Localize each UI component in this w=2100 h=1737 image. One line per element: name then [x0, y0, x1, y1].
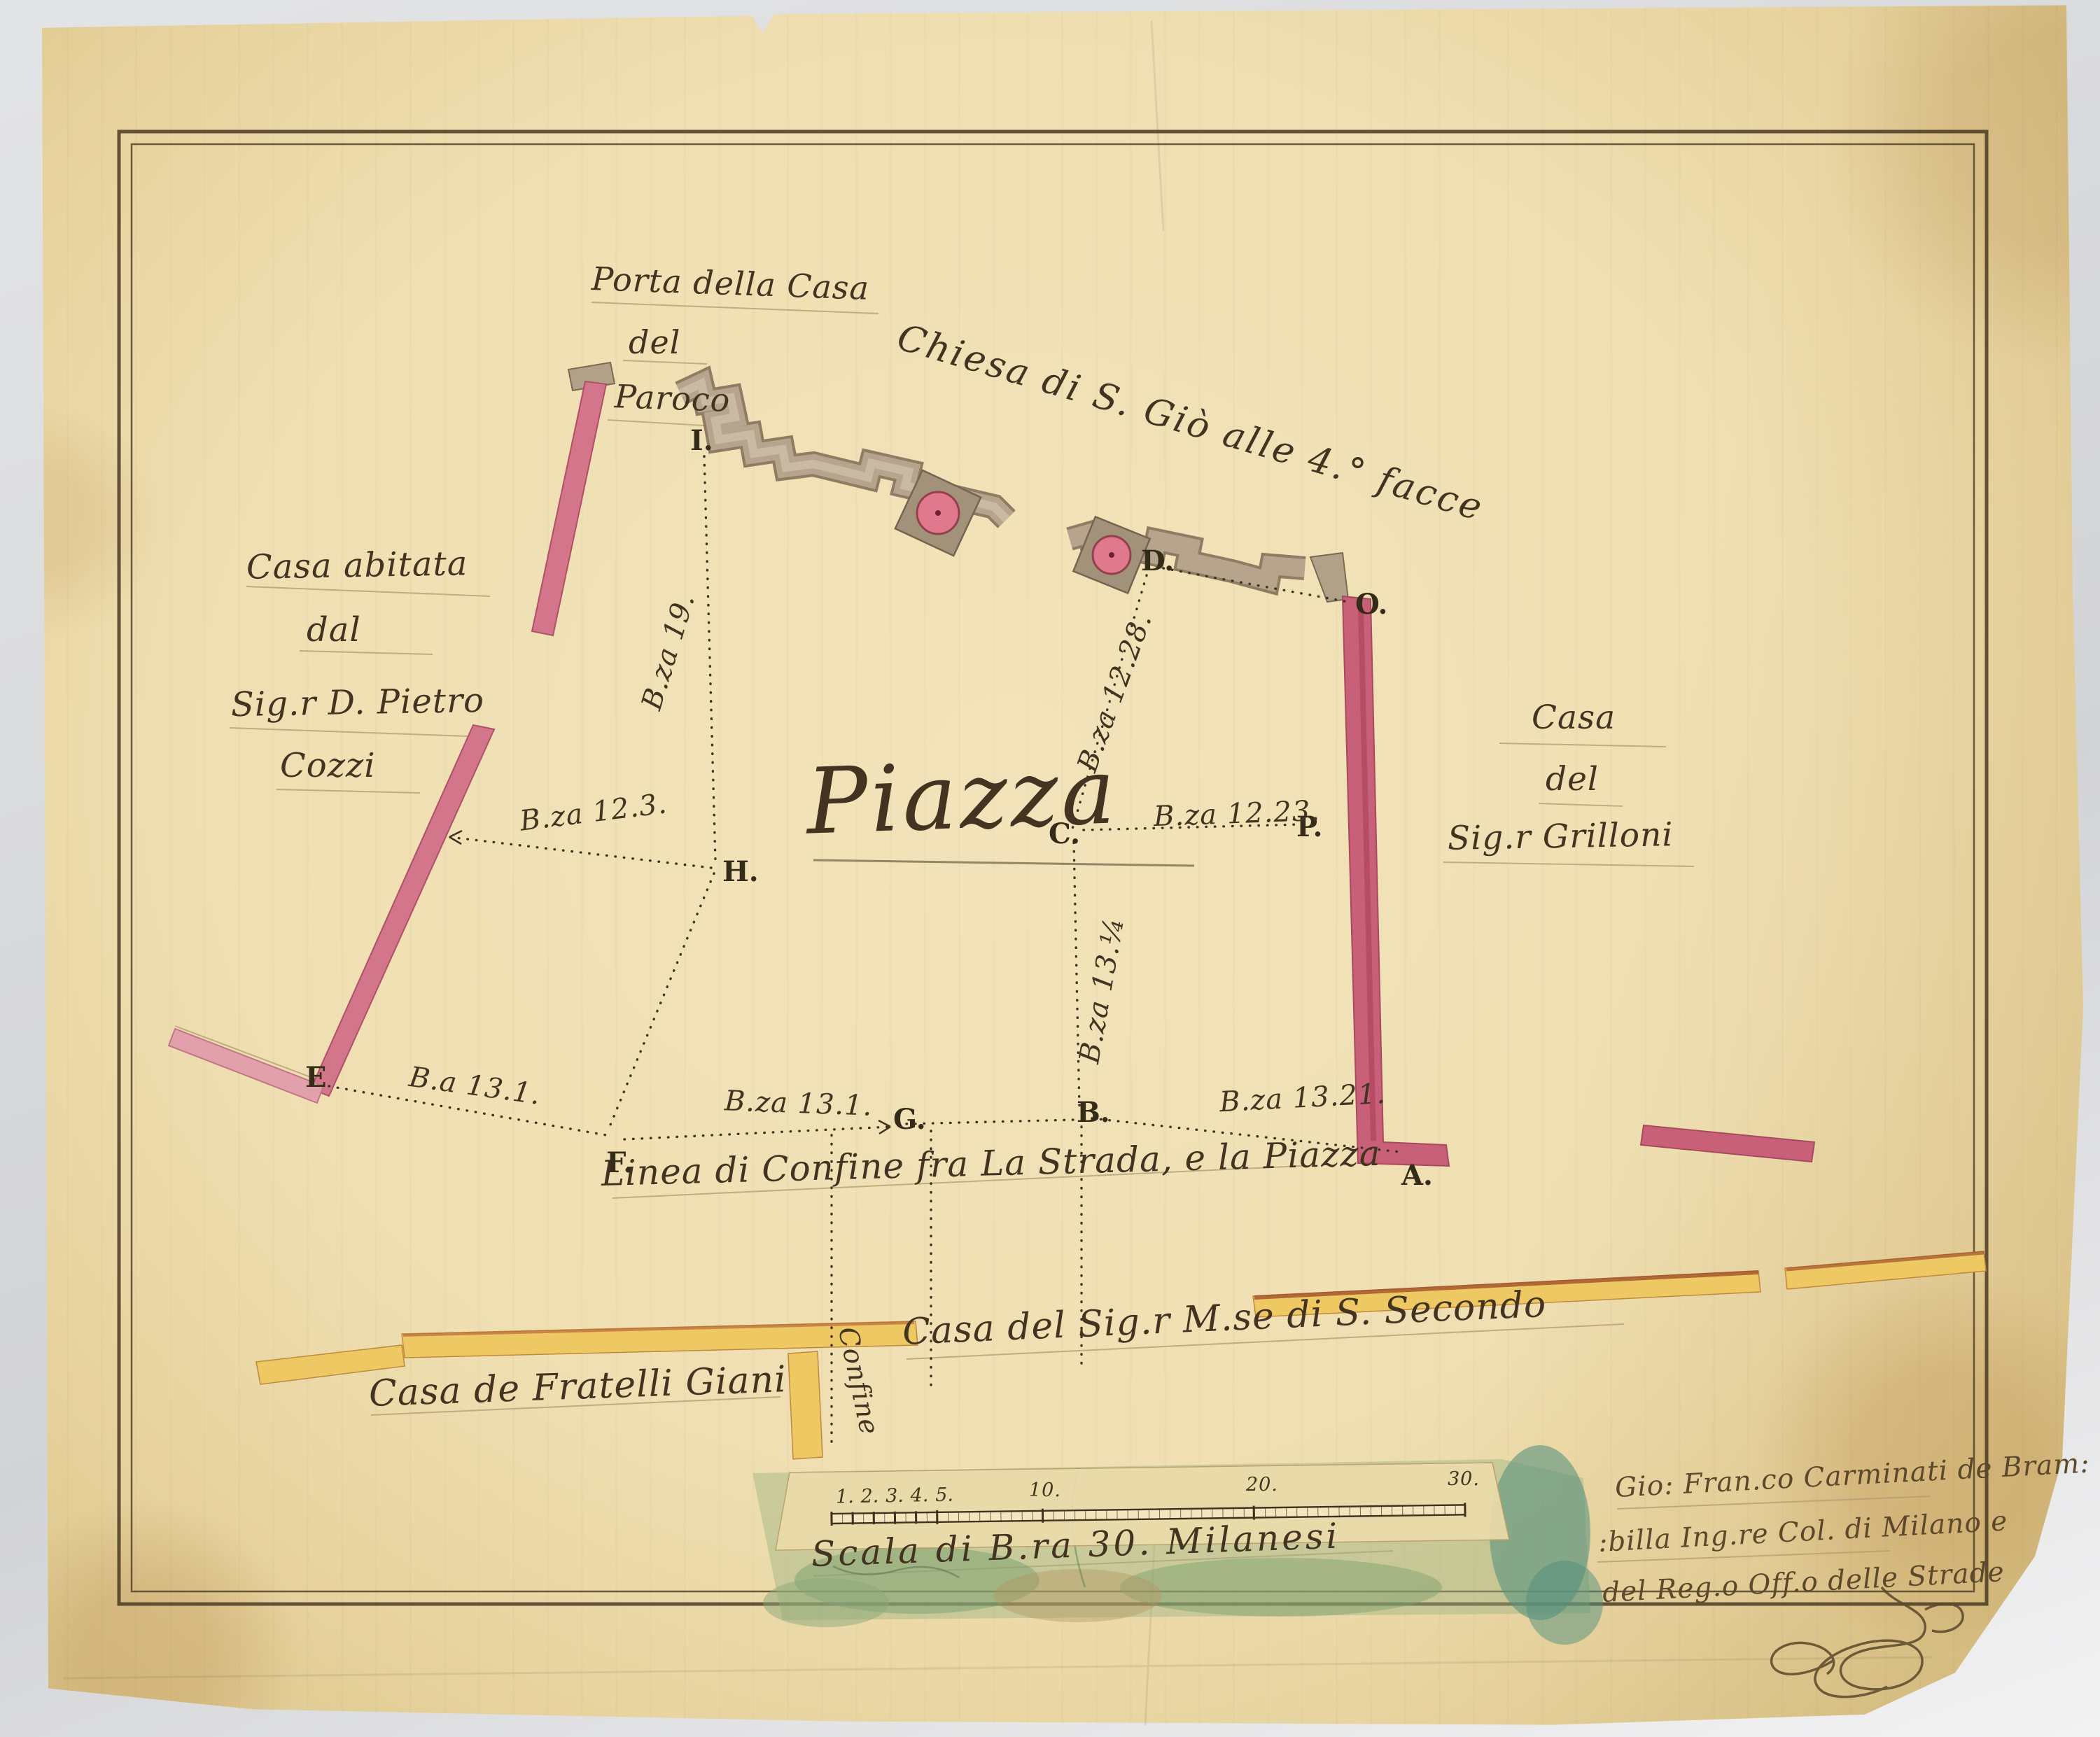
scale-tick-3: 3. — [885, 1485, 904, 1507]
scale-tick-2: 2. — [860, 1485, 878, 1507]
point-E: E — [305, 1061, 327, 1094]
point-H: H. — [722, 855, 759, 888]
scale-tick-labels-1to5: 1. 2. 3. 4. 5. — [836, 1484, 954, 1508]
scanned-map-sheet: Porta della Casa del Paroco Chiesa di S.… — [0, 0, 2100, 1737]
point-G: G. — [893, 1103, 926, 1136]
casa-grilloni-line3: Sig.r Grilloni — [1448, 815, 1674, 858]
e-corner-wall — [169, 1029, 323, 1103]
point-I: I. — [690, 424, 713, 457]
scale-tick-1: 1. — [836, 1486, 854, 1507]
point-O: O. — [1355, 588, 1387, 621]
casa-cozzi-line1: Casa abitata — [246, 544, 468, 587]
point-D: D. — [1141, 544, 1174, 577]
scale-tick-5: 5. — [935, 1484, 953, 1506]
yellow-house-walls — [256, 1251, 1986, 1459]
scale-tick-20: 20. — [1246, 1474, 1278, 1496]
casa-grilloni-line2: del — [1546, 760, 1599, 799]
casa-cozzi-line4: Cozzi — [280, 746, 376, 785]
piazza-underline — [813, 860, 1194, 866]
porta-label-line3: Paroco — [614, 377, 731, 419]
scale-tick-4: 4. — [910, 1484, 928, 1506]
confine-wall-vertical — [788, 1351, 822, 1459]
scale-tick-30: 30. — [1448, 1468, 1480, 1490]
point-B: B. — [1077, 1096, 1110, 1129]
point-A: A. — [1401, 1159, 1433, 1192]
point-C: C. — [1049, 817, 1080, 850]
church-columns — [895, 470, 1150, 593]
porta-label-line2: del — [629, 323, 680, 361]
far-right-wall — [1641, 1125, 1814, 1162]
scale-tick-10: 10. — [1029, 1479, 1061, 1501]
measure-fg: B.za 13.1. — [724, 1085, 873, 1122]
casa-grilloni-line1: Casa — [1532, 698, 1616, 737]
secondo-wall-right — [1785, 1251, 1986, 1289]
measure-cp: B.za 12.23. — [1153, 795, 1320, 833]
casa-cozzi-line2: dal — [307, 610, 361, 649]
point-F: F. — [606, 1146, 633, 1179]
casa-cozzi-line3: Sig.r D. Pietro — [231, 681, 485, 724]
paroco-wall — [532, 381, 606, 635]
